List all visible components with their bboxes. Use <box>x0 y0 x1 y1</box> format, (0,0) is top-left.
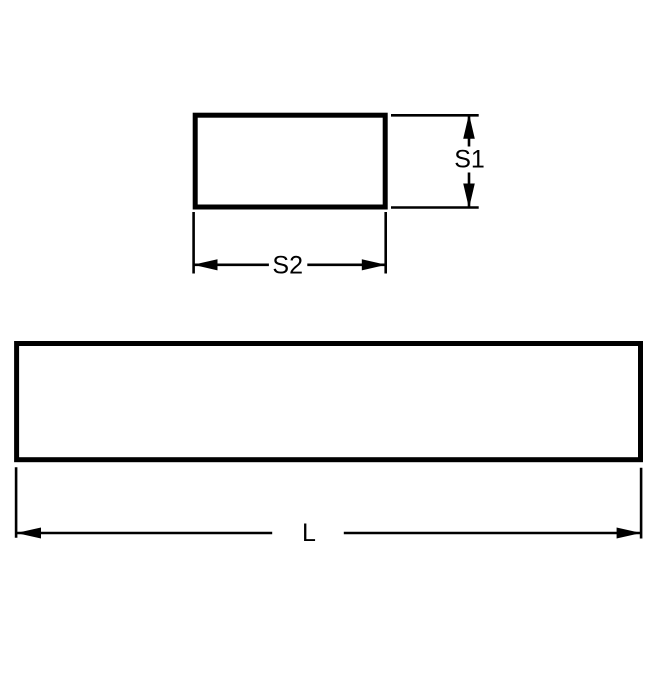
svg-text:S2: S2 <box>272 251 303 279</box>
svg-text:L: L <box>302 519 316 547</box>
svg-text:S1: S1 <box>454 146 485 174</box>
